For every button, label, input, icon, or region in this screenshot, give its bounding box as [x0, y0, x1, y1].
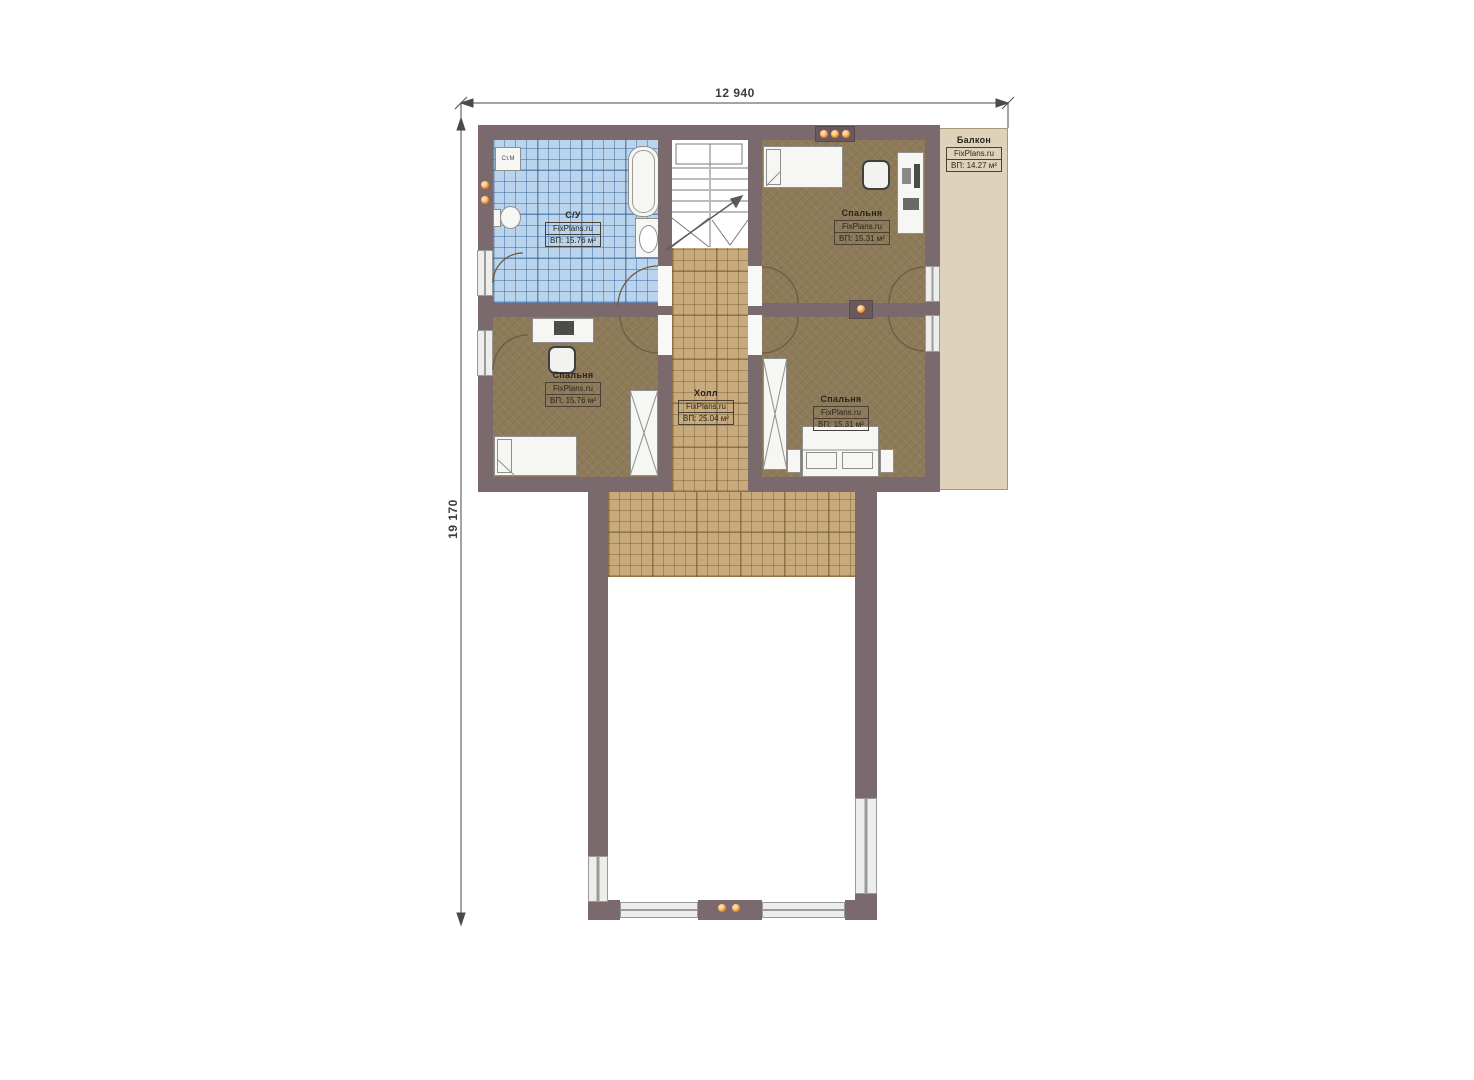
room-area-text: ВП: 15.76 м² [546, 395, 600, 406]
room-name: Спальня [821, 394, 862, 404]
room-name: Балкон [957, 135, 991, 145]
toilet-icon [500, 206, 521, 229]
wing-corner-bottom-left [588, 900, 620, 920]
nightstand-left [787, 449, 801, 473]
socket-icon [842, 130, 850, 138]
dimension-height-label: 19 170 [446, 479, 460, 559]
wall-bathroom-bedroom [493, 303, 658, 317]
keyboard-icon [902, 168, 911, 184]
watermark-text: FixPlans.ru [835, 221, 889, 233]
door-gap-bedroom-top-right [748, 266, 762, 306]
socket-icon [831, 130, 839, 138]
room-name: Спальня [553, 370, 594, 380]
bed-pillow [806, 452, 837, 469]
monitor-icon [914, 164, 920, 188]
room-label-bedroom-bottom-right: Спальня FixPlans.ru ВП: 15.31 м² [801, 394, 881, 431]
watermark-text: FixPlans.ru [546, 223, 600, 235]
stairwell-floor [672, 140, 748, 248]
wardrobe-right [763, 358, 787, 470]
door-gap-bedroom-left [658, 315, 672, 355]
room-info-box: FixPlans.ru ВП: 25.04 м² [678, 400, 734, 425]
room-area-text: ВП: 15.31 м² [835, 233, 889, 244]
socket-icon [481, 181, 489, 189]
wing-wall-bottom-center [698, 900, 762, 920]
room-area-text: ВП: 14.27 м² [947, 160, 1001, 171]
wall-left [478, 140, 493, 477]
room-name: Холл [694, 388, 718, 398]
door-gap-bedroom-bottom-right [748, 315, 762, 355]
window-wing-left [588, 856, 608, 902]
wing-corner-bottom-right [845, 900, 877, 920]
room-label-hall: Холл FixPlans.ru ВП: 25.04 м² [666, 388, 746, 425]
socket-icon [857, 305, 865, 313]
wing-wall-left [588, 492, 608, 856]
balcony-door-top [925, 266, 940, 302]
watermark-text: FixPlans.ru [546, 383, 600, 395]
watermark-text: FixPlans.ru [947, 148, 1001, 160]
balcony-door-bottom [925, 315, 940, 352]
room-label-balcony: Балкон FixPlans.ru ВП: 14.27 м² [934, 135, 1014, 172]
room-label-bedroom-top-right: Спальня FixPlans.ru ВП: 15.31 м² [822, 208, 902, 245]
desk-printer-icon [903, 198, 919, 210]
room-name: Спальня [842, 208, 883, 218]
desk-chair-icon [862, 160, 890, 190]
socket-icon [732, 904, 740, 912]
wall-bottom-left [478, 477, 672, 492]
sink-bowl-icon [639, 225, 658, 253]
washing-machine-label: Ст.М [496, 156, 520, 162]
wall-inner-right-upper [748, 140, 762, 266]
wall-right-mid [925, 302, 940, 315]
wall-top [478, 125, 940, 140]
room-info-box: FixPlans.ru ВП: 15.76 м² [545, 382, 601, 407]
room-label-bedroom-left: Спальня FixPlans.ru ВП: 15.76 м² [533, 370, 613, 407]
room-area-text: ВП: 25.04 м² [679, 413, 733, 424]
window-wing-bottom-right [762, 902, 845, 918]
bed-pillow [766, 149, 781, 185]
wall-inner-right-mid [748, 306, 762, 315]
room-label-bathroom: С/У FixPlans.ru ВП: 15.76 м² [533, 210, 613, 247]
room-info-box: FixPlans.ru ВП: 14.27 м² [946, 147, 1002, 172]
dimension-width-label: 12 940 [695, 86, 775, 100]
wardrobe-left [630, 390, 658, 476]
balcony-floor [940, 128, 1008, 490]
window-wing-right [855, 798, 877, 894]
floor-plan-canvas: Ст.М [0, 0, 1474, 1080]
room-name: С/У [565, 210, 581, 220]
wall-between-bedrooms [762, 303, 925, 317]
room-info-box: FixPlans.ru ВП: 15.31 м² [813, 406, 869, 431]
watermark-text: FixPlans.ru [679, 401, 733, 413]
room-info-box: FixPlans.ru ВП: 15.31 м² [834, 220, 890, 245]
watermark-text: FixPlans.ru [814, 407, 868, 419]
room-info-box: FixPlans.ru ВП: 15.76 м² [545, 222, 601, 247]
socket-icon [820, 130, 828, 138]
wall-inner-left-mid [658, 306, 672, 315]
room-area-text: ВП: 15.76 м² [546, 235, 600, 246]
room-area-text: ВП: 15.31 м² [814, 419, 868, 430]
wing-wall-right [855, 492, 877, 798]
wall-inner-right-lower [748, 355, 762, 477]
hall-floor-upper [672, 248, 748, 492]
wall-inner-left-upper [658, 140, 672, 266]
hall-floor-lower [608, 492, 855, 577]
wall-bottom-right [748, 477, 940, 492]
bathtub-inner [632, 150, 655, 213]
socket-icon [718, 904, 726, 912]
window-wing-bottom-left [620, 902, 698, 918]
bed-pillow [497, 439, 512, 473]
washing-machine: Ст.М [495, 147, 521, 171]
window-bathroom [477, 250, 493, 296]
bathtub-icon [628, 146, 659, 217]
wall-right-lower [925, 352, 940, 492]
laptop-icon [554, 321, 574, 335]
door-gap-bathroom [658, 266, 672, 306]
sink [635, 218, 659, 258]
bed-pillow [842, 452, 873, 469]
window-bedroom-left [477, 330, 493, 376]
nightstand-right [880, 449, 894, 473]
socket-icon [481, 196, 489, 204]
